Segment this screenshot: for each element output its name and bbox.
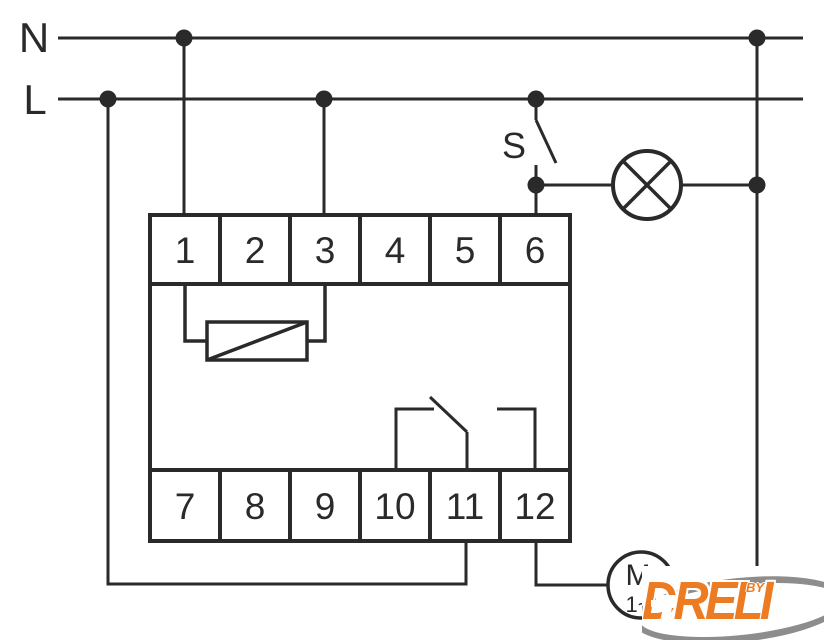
junction-dot-line-switch <box>528 91 545 108</box>
contact-fixed-right <box>497 409 535 470</box>
switch-label: S <box>502 125 526 166</box>
line-bus-label: L <box>23 76 46 123</box>
junction-dot-neutral-right <box>749 30 766 47</box>
lamp-icon <box>613 151 681 219</box>
junction-dot-neutral-t1 <box>176 30 193 47</box>
terminal-6-label: 6 <box>525 230 546 271</box>
terminal-9-label: 9 <box>315 486 336 527</box>
junction-dot-switch-lamp <box>528 177 545 194</box>
relay-contact-symbol <box>396 397 535 470</box>
terminal-1-label: 1 <box>175 230 196 271</box>
terminal-4-label: 4 <box>385 230 406 271</box>
circuit-diagram: N L S <box>0 0 824 640</box>
contact-blade <box>430 397 467 432</box>
relay-coil-symbol <box>185 284 325 360</box>
dreli-logo: DRELI BY <box>642 566 824 640</box>
lamp-cross <box>623 161 671 209</box>
junction-dot-line-t3 <box>316 91 333 108</box>
logo-by-text: BY <box>746 580 764 595</box>
terminal-10-label: 10 <box>374 486 415 527</box>
relay-device: 1 2 3 4 5 6 7 8 9 10 11 12 <box>150 215 570 541</box>
switch-s: S <box>502 99 556 215</box>
junction-dot-lamp-neutral <box>749 177 766 194</box>
terminal-3-label: 3 <box>315 230 336 271</box>
terminal-12-label: 12 <box>514 486 555 527</box>
coil-diagonal <box>207 322 307 360</box>
terminal-2-label: 2 <box>245 230 266 271</box>
terminal-11-label: 11 <box>446 486 484 527</box>
junction-dot-line-left <box>100 91 117 108</box>
wire-terminal12-to-motor <box>536 541 608 585</box>
contact-fixed-left <box>396 409 434 470</box>
coil-lead-left <box>185 284 207 341</box>
terminal-7-label: 7 <box>175 486 196 527</box>
wiring-diagram-page: N L S <box>0 0 824 640</box>
coil-lead-right <box>307 284 325 341</box>
neutral-bus-label: N <box>19 14 49 61</box>
terminal-5-label: 5 <box>455 230 476 271</box>
drill-icon <box>651 592 681 618</box>
switch-blade <box>536 120 556 163</box>
terminal-8-label: 8 <box>245 486 266 527</box>
